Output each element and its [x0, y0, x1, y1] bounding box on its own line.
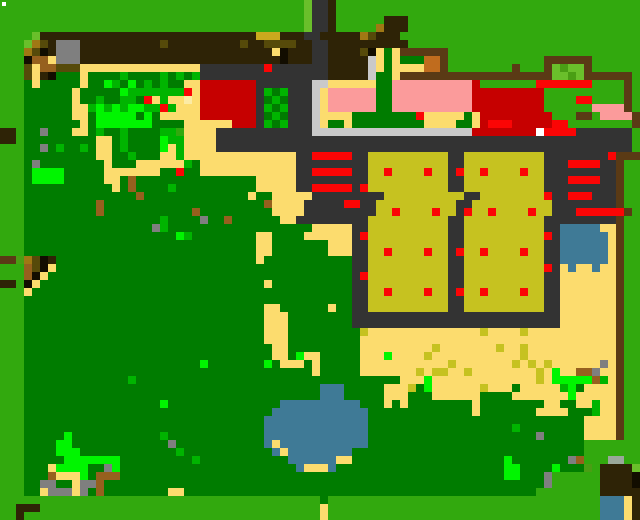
- farm-map-viewport: [0, 0, 640, 520]
- farm-map-canvas[interactable]: [0, 0, 640, 520]
